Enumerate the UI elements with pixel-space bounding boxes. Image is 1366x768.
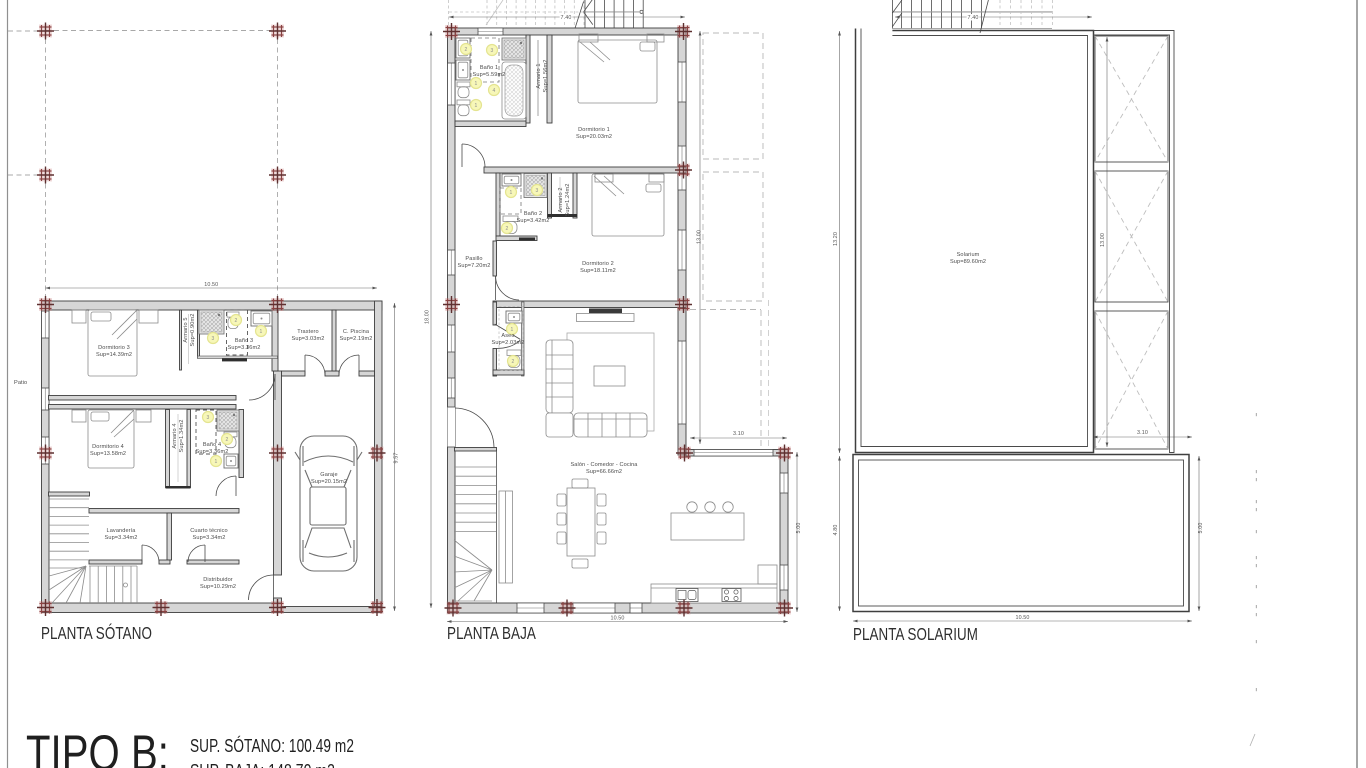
svg-text:3: 3 bbox=[207, 415, 210, 421]
svg-text:3: 3 bbox=[212, 336, 215, 342]
svg-text:2: 2 bbox=[226, 437, 229, 443]
svg-text:Armario 2Sup=1.24m2: Armario 2Sup=1.24m2 bbox=[558, 184, 571, 217]
svg-text:Dormitorio 2Sup=18.11m2: Dormitorio 2Sup=18.11m2 bbox=[580, 261, 616, 274]
svg-text:PLANTA SÓTANO: PLANTA SÓTANO bbox=[41, 622, 152, 643]
svg-text:10.50: 10.50 bbox=[1016, 615, 1030, 621]
svg-text:10.50: 10.50 bbox=[611, 616, 625, 622]
svg-text:Armario 5Sup=0.90m2: Armario 5Sup=0.90m2 bbox=[183, 314, 196, 347]
svg-text:10.50: 10.50 bbox=[204, 282, 218, 288]
svg-text:13.00: 13.00 bbox=[697, 230, 703, 244]
svg-text:3.10: 3.10 bbox=[733, 431, 744, 437]
svg-text:2: 2 bbox=[235, 318, 238, 324]
svg-text:1: 1 bbox=[510, 190, 513, 196]
svg-text:Dormitorio 3Sup=14.39m2: Dormitorio 3Sup=14.39m2 bbox=[96, 345, 132, 358]
svg-text:PLANTA SOLARIUM: PLANTA SOLARIUM bbox=[853, 624, 978, 644]
svg-text:4.80: 4.80 bbox=[833, 525, 839, 536]
svg-text:SUP. BAJA: 148.70 m2: SUP. BAJA: 148.70 m2 bbox=[190, 761, 335, 768]
svg-text:3: 3 bbox=[536, 188, 539, 194]
svg-text:13.00: 13.00 bbox=[1100, 233, 1106, 247]
svg-text:7.40: 7.40 bbox=[561, 15, 572, 21]
svg-text:Dormitorio 1Sup=20.03m2: Dormitorio 1Sup=20.03m2 bbox=[576, 127, 612, 140]
svg-text:1: 1 bbox=[475, 81, 478, 87]
svg-text:3: 3 bbox=[491, 48, 494, 54]
svg-text:5.00: 5.00 bbox=[796, 523, 802, 534]
svg-text:1: 1 bbox=[215, 459, 218, 465]
svg-text:Armario 4Sup=1.34m2: Armario 4Sup=1.34m2 bbox=[172, 420, 185, 453]
svg-text:PLANTA BAJA: PLANTA BAJA bbox=[447, 623, 536, 643]
svg-text:DistribuidorSup=10.29m2: DistribuidorSup=10.29m2 bbox=[200, 577, 236, 590]
svg-text:SUP. SÓTANO: 100.49 m2: SUP. SÓTANO: 100.49 m2 bbox=[190, 735, 354, 756]
svg-text:5.00: 5.00 bbox=[1198, 523, 1204, 534]
svg-text:1: 1 bbox=[260, 329, 263, 335]
svg-text:9.57: 9.57 bbox=[394, 453, 400, 464]
svg-text:Dormitorio 4Sup=13.58m2: Dormitorio 4Sup=13.58m2 bbox=[90, 444, 126, 457]
svg-text:C. PiscinaSup=2.19m2: C. PiscinaSup=2.19m2 bbox=[340, 329, 373, 342]
svg-text:3.10: 3.10 bbox=[1137, 430, 1148, 436]
svg-text:Armario 1Sup=1.56m2: Armario 1Sup=1.56m2 bbox=[536, 60, 549, 93]
svg-text:2: 2 bbox=[506, 226, 509, 232]
svg-text:1: 1 bbox=[511, 327, 514, 333]
svg-text:18.00: 18.00 bbox=[425, 310, 431, 324]
svg-text:Cuarto técnicoSup=3.34m2: Cuarto técnicoSup=3.34m2 bbox=[190, 528, 227, 541]
svg-text:Patio: Patio bbox=[14, 380, 27, 386]
svg-text:13.20: 13.20 bbox=[833, 232, 839, 246]
svg-text:2: 2 bbox=[465, 47, 468, 53]
svg-text:TIPO B:: TIPO B: bbox=[26, 725, 169, 768]
svg-text:LavanderíaSup=3.34m2: LavanderíaSup=3.34m2 bbox=[105, 528, 138, 541]
svg-text:4: 4 bbox=[493, 88, 496, 94]
svg-text:1: 1 bbox=[475, 103, 478, 109]
svg-text:2: 2 bbox=[512, 359, 515, 365]
svg-text:7.40: 7.40 bbox=[968, 15, 979, 21]
